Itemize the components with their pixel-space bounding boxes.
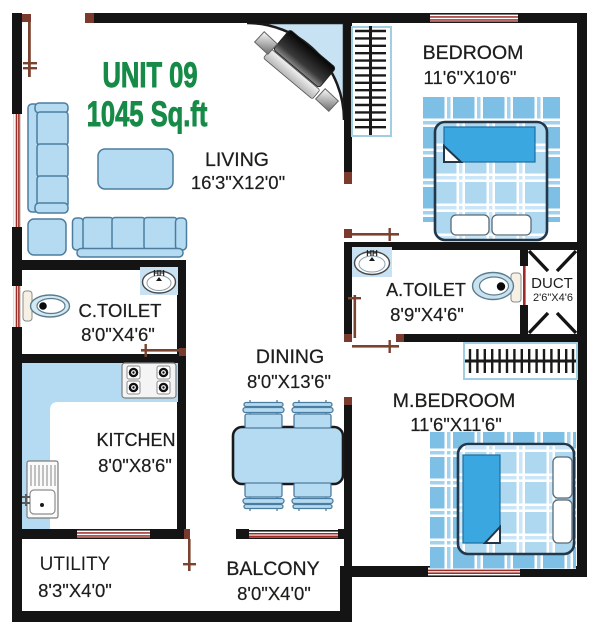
svg-text:8'9"X4'6": 8'9"X4'6"	[390, 304, 464, 325]
svg-text:2'6"X4'6: 2'6"X4'6	[533, 292, 573, 304]
svg-text:8'0"X13'6": 8'0"X13'6"	[247, 371, 331, 392]
svg-text:11'6"X10'6": 11'6"X10'6"	[424, 67, 517, 88]
svg-text:A.TOILET: A.TOILET	[386, 280, 466, 300]
svg-text:11'6"X11'6": 11'6"X11'6"	[410, 414, 502, 435]
svg-text:HH: HH	[366, 249, 378, 258]
svg-text:8'0"X4'6": 8'0"X4'6"	[81, 324, 155, 345]
svg-text:LIVING: LIVING	[205, 149, 269, 171]
svg-text:DINING: DINING	[256, 346, 324, 368]
svg-text:KITCHEN: KITCHEN	[96, 430, 175, 450]
svg-text:UTILITY: UTILITY	[40, 554, 111, 575]
svg-text:8'3"X4'0": 8'3"X4'0"	[38, 580, 112, 601]
svg-text:BEDROOM: BEDROOM	[423, 42, 524, 64]
svg-text:DUCT: DUCT	[531, 275, 573, 292]
svg-text:16'3"X12'0": 16'3"X12'0"	[191, 172, 285, 193]
svg-text:C.TOILET: C.TOILET	[79, 300, 162, 321]
svg-text:1045 Sq.ft: 1045 Sq.ft	[87, 95, 208, 134]
svg-text:BALCONY: BALCONY	[226, 558, 319, 580]
svg-text:UNIT 09: UNIT 09	[102, 56, 197, 95]
svg-text:8'0"X8'6": 8'0"X8'6"	[98, 455, 172, 476]
svg-text:HH: HH	[153, 269, 165, 278]
svg-text:M.BEDROOM: M.BEDROOM	[393, 390, 515, 412]
svg-text:8'0"X4'0": 8'0"X4'0"	[237, 583, 311, 604]
